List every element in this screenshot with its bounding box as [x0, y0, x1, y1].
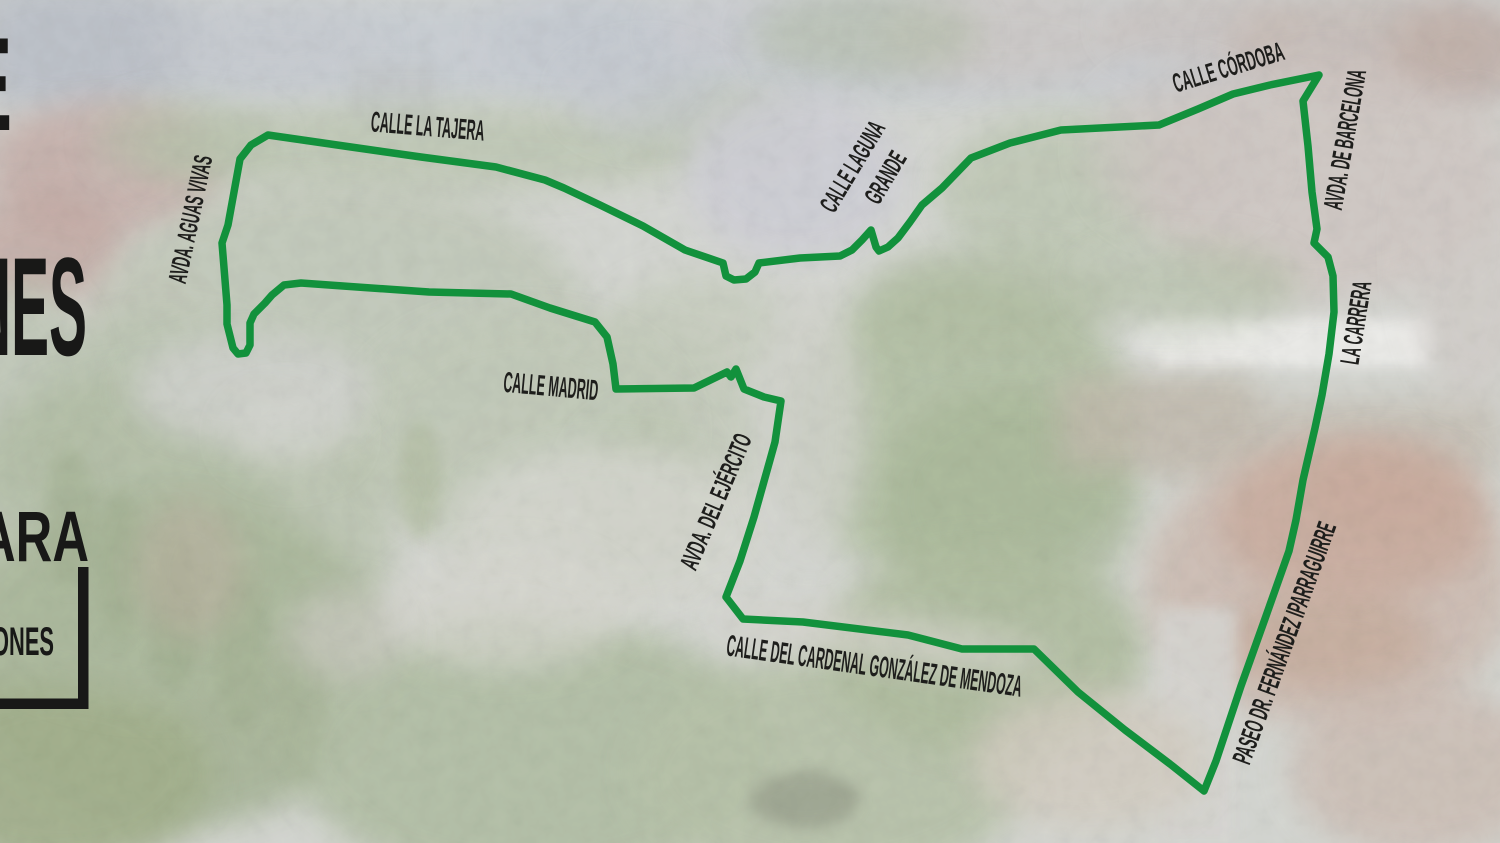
svg-text:ONES: ONES: [0, 620, 54, 664]
svg-text:ARA: ARA: [0, 498, 89, 577]
svg-text:E: E: [0, 11, 12, 159]
svg-text:NES: NES: [0, 228, 87, 385]
